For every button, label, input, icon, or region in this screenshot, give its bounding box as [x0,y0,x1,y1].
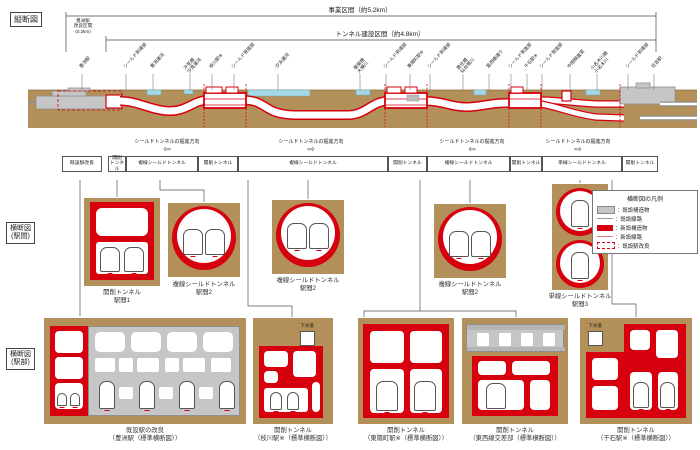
legend: 横断図の凡例 ：既設構造物 ：既設線路 ：新設構造物 ：新設線路 ：既設駅改良 [592,190,698,254]
opening [159,387,173,399]
column-gap [477,333,489,346]
train-outline [179,381,195,409]
opening [592,386,618,410]
cross-section-double-shield [434,204,506,278]
train-outline [471,231,491,257]
opening [512,361,550,375]
station-section-toyocho [358,318,454,424]
new-structure-swatch [597,225,613,231]
opening [410,331,442,363]
tunnel-span-label: トンネル建設区間（約4.8km） [280,28,480,38]
legend-item: ：既設駅改良 [597,241,693,250]
legend-label: ：新設構造物 [615,224,647,232]
new-structure [472,356,558,416]
opening [203,332,233,352]
train-outline [70,393,80,406]
train-outline [633,382,649,408]
column-gap [499,333,511,346]
opening [55,331,83,353]
mid-caption: 単線シールドトンネル 駅間3 [525,293,635,308]
right-arrow-icon: ⇨ [533,145,623,153]
segment-double-shield: 複線シールドトンネル [238,156,388,172]
segment-cut-cover: 開削トンネル [388,156,427,172]
opening [264,388,308,412]
opening [630,330,650,350]
legend-item: ：既設線路 [597,214,693,223]
new-structure [50,326,88,416]
left-arrow-icon: ⇦ [122,145,212,153]
mid-caption: 複線シールドトンネル 駅間2 [253,277,363,292]
segment-cut-cover: 開削 トンネル [108,156,126,172]
mid-caption: 複線シールドトンネル 駅間2 [149,281,259,296]
business-span-label: 事業区間（約5.2km） [260,4,460,14]
train-outline [376,381,398,411]
beam [467,325,565,330]
station-section-toyosu [44,318,246,424]
segment-double-shield: 複線シールドトンネル [427,156,510,172]
existing-tozai-structure [466,324,564,352]
column-gap [521,333,533,346]
mid-caption: 複線シールドトンネル 駅間2 [415,281,525,296]
segment-single-shield: 単線シールドトンネル [542,156,622,172]
column-gap [543,333,555,346]
sewer-box [300,331,315,346]
cross-section-cut-cover-ekikan1 [84,198,160,286]
legend-title: 横断図の凡例 [597,194,693,203]
station-caption: 開削トンネル （枝川駅※（標準横断図）） [233,427,353,442]
left-arrow-icon: ⇦ [427,145,517,153]
legend-item: ：既設構造物 [597,205,693,214]
sewer-label: 下水道 [295,323,319,328]
beam [467,347,565,351]
train-outline [414,381,436,411]
station-section-sengoku: 下水道 [580,318,692,424]
train-outline [124,247,144,272]
cross-section-double-shield [272,200,344,274]
station-section-tozai-crossing [462,318,568,424]
cross-section-double-shield [168,203,240,277]
opening [478,361,506,375]
station-caption: 開削トンネル （東陽町駅※（標準横断図）） [346,427,466,442]
opening [530,380,550,410]
shield-direction-label: シールドトンネルの掘進方向 ⇨ [266,139,356,153]
train-outline [99,381,115,409]
new-structure [259,346,323,418]
train-outline [139,381,155,409]
legend-label: ：新設線路 [615,233,642,241]
train-outline [205,229,225,255]
new-structure [363,324,449,418]
new-structure [586,352,626,418]
segment-existing-station-improvement: 既設駅改良 [62,156,102,172]
right-arrow-icon: ⇨ [266,145,356,153]
opening [137,358,159,372]
opening [95,358,115,372]
station-caption: 開削トンネル （東西線交差部（標準横断図）） [450,427,580,442]
legend-item: ：新設構造物 [597,223,693,232]
opening [96,208,148,236]
opening [592,358,618,380]
legend-label: ：既設線路 [615,215,642,223]
opening [95,332,125,352]
opening [131,332,161,352]
train-outline [287,223,307,249]
toyosu-improvement-span-label: 豊洲駅 改良区間 (0.2km) [62,18,104,34]
opening [312,382,320,412]
label-cross-section-stations: 横断図 (駅部) [6,348,35,370]
train-outline [100,247,120,272]
opening [167,332,197,352]
tunnel-project-diagram: 縦断図 横断図 (駅間) 横断図 (駅部) 事業区間（約5.2km） トンネル建… [0,0,700,450]
opening [119,387,133,399]
train-outline [309,223,329,249]
legend-label: ：既設駅改良 [617,242,649,250]
train-outline [660,382,675,408]
existing-track-swatch [597,218,613,219]
opening [264,371,278,383]
train-outline [219,381,235,409]
train-outline [57,393,67,406]
opening [96,242,148,274]
sewer-label: 下水道 [583,323,607,328]
label-longitudinal-section: 縦断図 [10,12,42,27]
new-structure [90,202,154,280]
train-outline [486,383,506,409]
opening [264,351,288,367]
station-section-edagawa: 下水道 [253,318,333,424]
existing-structure [88,326,240,416]
train-outline [449,231,469,257]
opening [55,357,83,379]
segment-cut-cover: 開削トンネル [198,156,238,172]
segment-cut-cover: 開削トンネル [510,156,542,172]
label-cross-section-between-stations: 横断図 (駅間) [6,222,35,244]
train-outline [287,392,299,410]
opening [165,358,179,372]
legend-label: ：既設構造物 [617,206,649,214]
new-track-swatch [597,236,613,237]
shield-direction-label: シールドトンネルの掘進方向 ⇦ [122,139,212,153]
opening [211,358,231,372]
station-caption: 既設駅の改良 （豊洲駅（標準横断図）） [85,427,205,442]
train-outline [270,392,282,410]
opening [119,358,133,372]
shield-direction-label: シールドトンネルの掘進方向 ⇦ [427,139,517,153]
station-improvement-swatch [597,242,615,249]
station-caption: 開削トンネル （千石駅※（標準横断図）） [576,427,696,442]
opening [370,331,404,363]
train-outline [571,200,589,227]
opening [55,383,83,409]
leader-lines [82,74,654,90]
segment-cut-cover: 開削トンネル [622,156,658,172]
opening [293,351,316,377]
existing-structure-swatch [597,206,615,214]
train-outline [183,229,203,255]
legend-item: ：新設線路 [597,232,693,241]
segment-double-shield: 複線シールドトンネル [126,156,198,172]
opening [199,387,213,399]
opening [183,358,205,372]
train-outline [571,252,589,279]
opening [656,330,678,358]
shield-direction-label: シールドトンネルの掘進方向 ⇨ [533,139,623,153]
sewer-box [588,331,603,346]
new-structure [624,324,686,418]
